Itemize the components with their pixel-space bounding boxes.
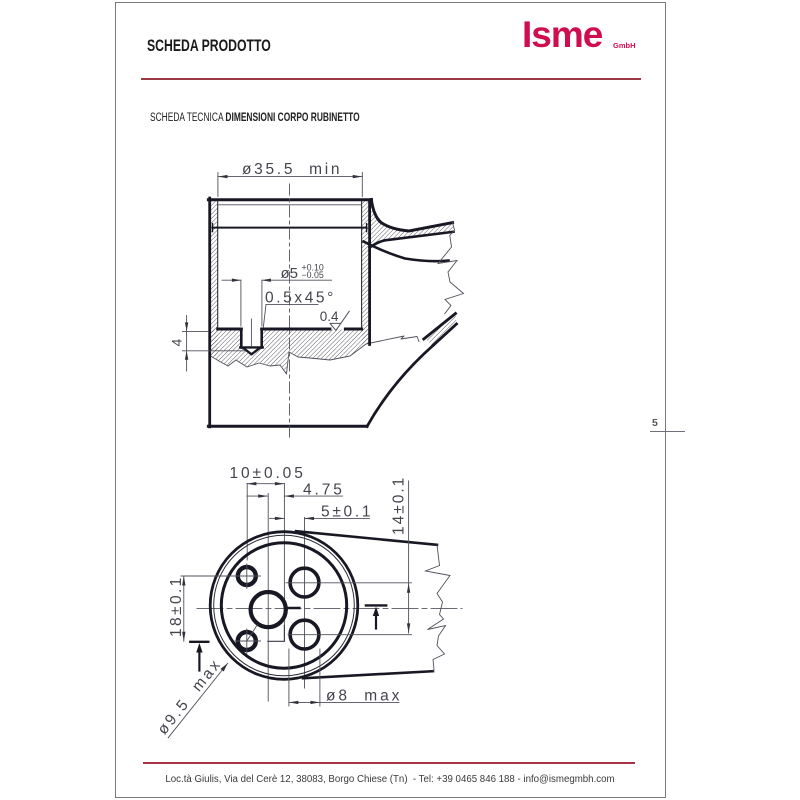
svg-text:10±0.05: 10±0.05 bbox=[230, 465, 306, 482]
svg-text:ø35.5 min: ø35.5 min bbox=[242, 161, 342, 178]
svg-text:ø8 max: ø8 max bbox=[326, 688, 402, 705]
svg-text:14±0.1: 14±0.1 bbox=[391, 476, 408, 535]
svg-text:ø9.5 max: ø9.5 max bbox=[154, 655, 225, 738]
svg-text:4: 4 bbox=[169, 339, 185, 347]
svg-text:0.5x45°: 0.5x45° bbox=[265, 290, 336, 307]
svg-text:ø5: ø5 bbox=[281, 265, 299, 282]
svg-text:−0.05: −0.05 bbox=[302, 270, 324, 280]
svg-text:0.4: 0.4 bbox=[320, 309, 339, 324]
